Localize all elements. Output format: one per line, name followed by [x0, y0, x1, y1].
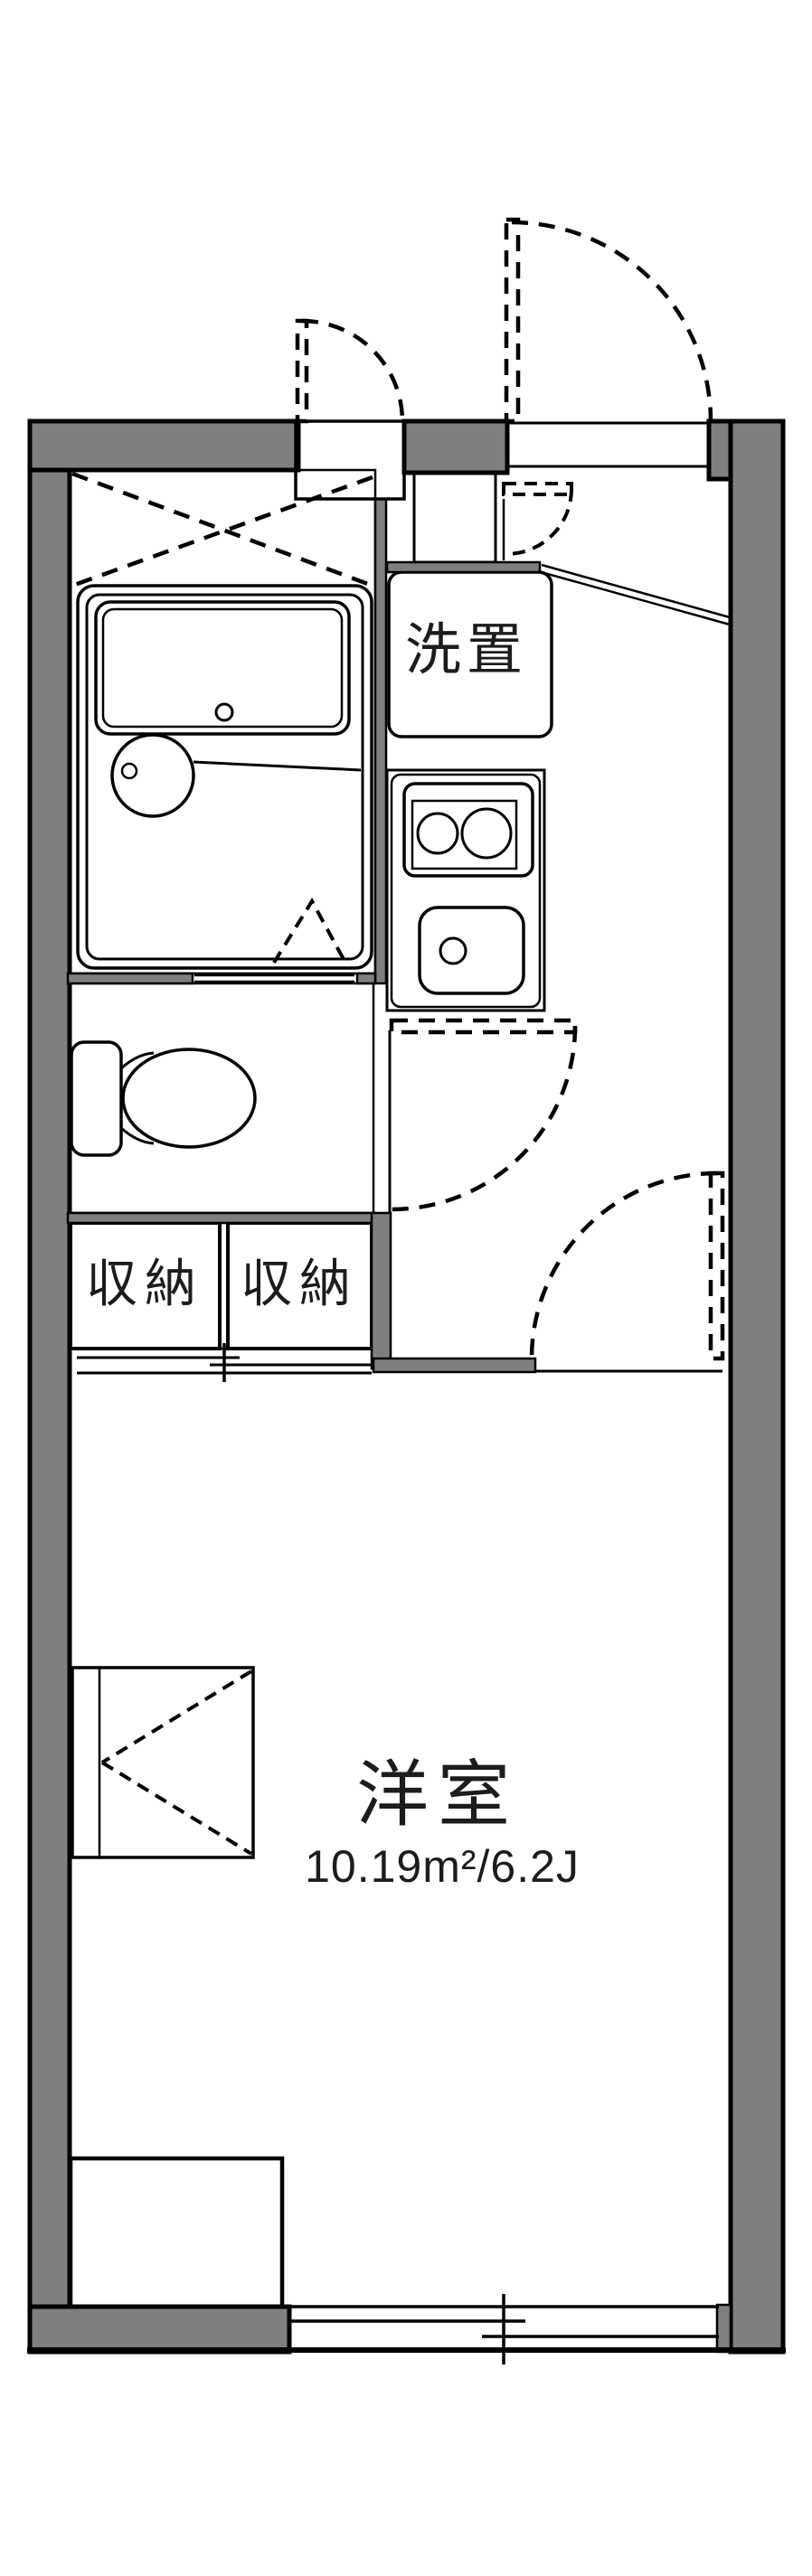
toilet-fixture: [71, 1042, 255, 1155]
unit-bath-inner: [87, 595, 363, 959]
main-room-door-arc: [532, 1173, 717, 1359]
wall-genkan-laundry-bar: [387, 562, 540, 572]
sink-drain: [440, 938, 466, 964]
bathroom-floor: [70, 470, 375, 973]
unit-bath-outer: [78, 586, 372, 968]
wall-right: [731, 421, 783, 2352]
rooms: [70, 470, 552, 1213]
furniture: [71, 1668, 282, 2307]
wall-storage-right: [372, 1213, 391, 1368]
kitchen-fixtures: [404, 784, 533, 993]
washroom-door-leaf: [504, 484, 571, 494]
wall-toilet-storage-divider: [68, 1213, 375, 1223]
bathtub-rim: [103, 609, 342, 727]
kitchen-sink: [420, 907, 524, 993]
bathtub-drain: [216, 704, 232, 720]
entrance-step-edge: [538, 565, 730, 625]
service-door-arc: [302, 321, 402, 421]
storage-left-label: 収納: [86, 1259, 203, 1311]
floor-plan: 洗置 収納 収納 洋室 10.19m²/6.2J: [0, 0, 812, 2576]
main-room-door-leaf: [711, 1173, 722, 1359]
service-door-leaf: [297, 321, 307, 421]
toilet-floor: [70, 983, 373, 1213]
room-area-label: 10.19m²/6.2J: [305, 1844, 580, 1889]
basin-faucet: [122, 764, 137, 778]
walls: [30, 421, 783, 2352]
upper-shelf-x-line: [72, 474, 373, 586]
corridor-door-arc: [392, 1026, 575, 1209]
wall-bath-toilet-divider-end: [357, 973, 375, 983]
corridor-door-leaf: [392, 1020, 575, 1032]
bathtub: [96, 602, 349, 734]
wall-bottom-right-jog: [717, 2305, 731, 2352]
bathroom-fixtures: [72, 474, 373, 968]
closet-sliding-door: [77, 1343, 372, 1382]
side-window-open-direction: [102, 1671, 251, 1854]
toilet-bowl: [123, 1049, 255, 1147]
stove-top: [404, 784, 533, 876]
washroom-door-arc: [506, 489, 571, 554]
stove-frame: [412, 801, 516, 869]
service-door-recess: [296, 421, 404, 499]
entrance-threshold: [507, 423, 711, 466]
floor-platform-box: [71, 2158, 282, 2307]
wall-top-left: [30, 421, 298, 470]
wall-top-mid: [404, 421, 507, 473]
kitchen-counter: [387, 770, 544, 1011]
wall-bath-toilet-divider: [68, 973, 193, 983]
entrance-door-arc: [512, 222, 711, 421]
wall-left: [30, 421, 70, 2352]
stove-burner: [462, 809, 511, 858]
toilet-tank: [71, 1042, 121, 1155]
storage-right-label: 収納: [241, 1259, 358, 1311]
kitchen-unit: [392, 775, 540, 1007]
sliding-window: [289, 2294, 719, 2364]
room-name-label: 洋室: [356, 1759, 519, 1831]
entrance-genkan: [414, 473, 496, 562]
bath-door-swing: [274, 901, 345, 963]
wall-bottom: [30, 2307, 289, 2352]
entrance-door-leaf: [506, 220, 518, 421]
stove-burner: [418, 813, 458, 853]
wall-main-room-top: [373, 1359, 535, 1372]
bathroom-door-threshold: [194, 975, 354, 982]
laundry-label: 洗置: [405, 623, 528, 679]
wall-bath-kitchen-divider: [375, 499, 386, 983]
vanity-counter-edge: [194, 762, 361, 770]
